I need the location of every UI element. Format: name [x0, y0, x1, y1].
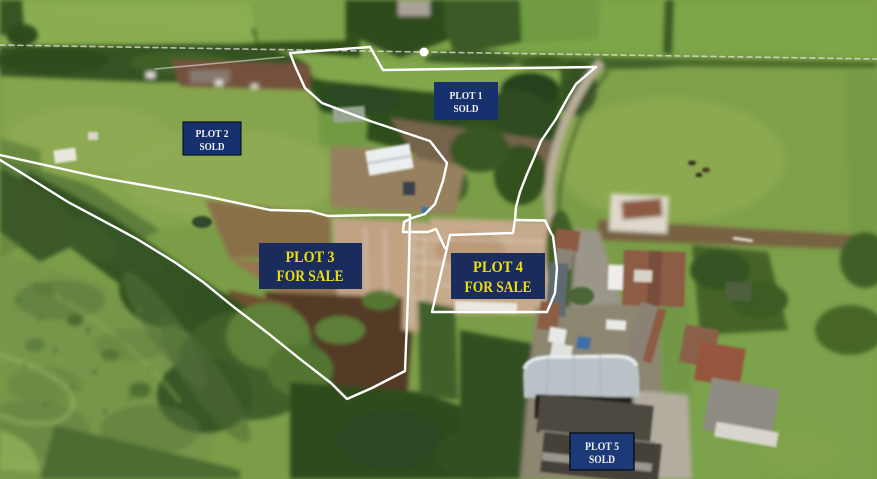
svg-text:PLOT 2: PLOT 2 [196, 129, 229, 140]
svg-text:PLOT 3: PLOT 3 [286, 249, 335, 266]
svg-text:PLOT 1: PLOT 1 [450, 90, 483, 102]
svg-text:FOR SALE: FOR SALE [465, 279, 532, 296]
svg-text:FOR SALE: FOR SALE [277, 268, 344, 285]
svg-text:SOLD: SOLD [454, 103, 479, 115]
svg-text:PLOT 4: PLOT 4 [473, 259, 523, 276]
svg-text:PLOT 5: PLOT 5 [585, 441, 619, 453]
svg-text:SOLD: SOLD [200, 142, 225, 153]
svg-text:SOLD: SOLD [589, 454, 615, 466]
